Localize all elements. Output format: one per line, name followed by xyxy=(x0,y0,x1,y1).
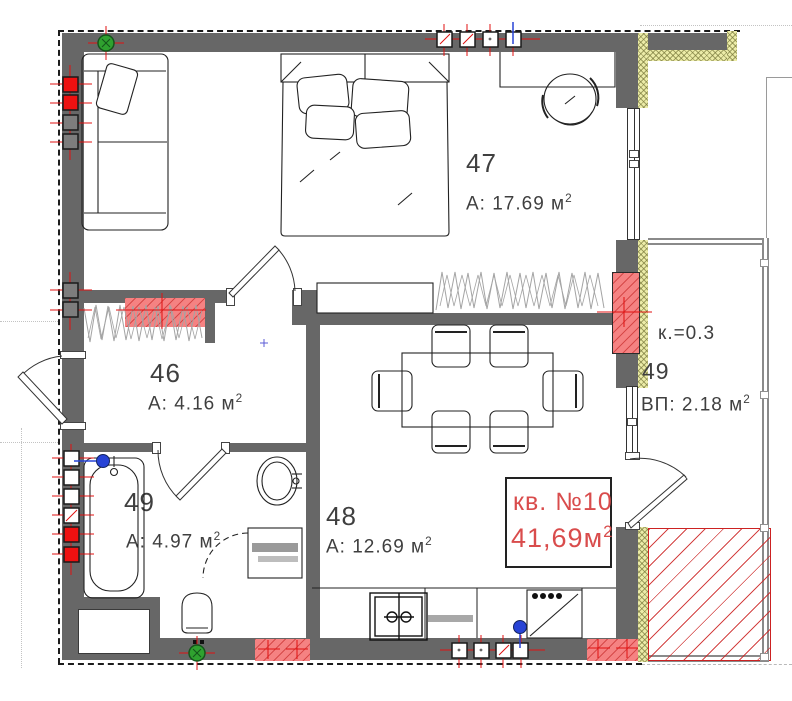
neighbour-line-h xyxy=(766,77,792,78)
washbasin xyxy=(257,457,302,505)
duct-niche xyxy=(78,609,150,654)
ref-line xyxy=(0,321,60,322)
bathtub xyxy=(84,456,144,598)
bed xyxy=(281,54,449,236)
kitchen-cabinet xyxy=(370,593,427,640)
bedroom-door xyxy=(229,246,295,297)
outer-dashed-left xyxy=(58,30,60,664)
vent-shaft xyxy=(612,272,640,354)
door-post xyxy=(60,422,86,430)
room-48-number: 48 xyxy=(326,501,357,532)
balcony-door xyxy=(628,458,687,528)
counter-bar xyxy=(428,615,473,622)
ref-cross xyxy=(260,339,268,347)
wall-stub-hall xyxy=(205,303,215,343)
wall-47-48 xyxy=(322,313,616,325)
outer-dashed-bottom xyxy=(58,663,642,665)
window-latch xyxy=(629,150,639,158)
wardrobe-zigzag-bedroom xyxy=(436,272,604,310)
wall-49-top-right xyxy=(227,443,306,452)
balcony-cold-zone xyxy=(648,528,771,661)
room-47-number: 47 xyxy=(466,148,497,179)
window-latch xyxy=(629,160,639,168)
insulation-right-1 xyxy=(638,33,648,108)
toilet xyxy=(182,593,212,644)
room-47-area: А: 17.69 м2 xyxy=(466,192,572,215)
radiator-bottom-right xyxy=(587,639,638,661)
apartment-number: кв. №10 xyxy=(513,488,613,517)
door-post xyxy=(221,442,230,454)
rail-joint xyxy=(760,259,769,267)
kitchen-counter xyxy=(312,588,616,638)
window-latch xyxy=(627,418,637,426)
balcony-area: ВП: 2.18 м2 xyxy=(641,393,750,416)
balcony-coef: к.=0.3 xyxy=(658,323,715,345)
neighbour-line-v xyxy=(766,77,767,238)
rail-joint xyxy=(760,391,769,399)
armchair xyxy=(542,74,598,125)
block-crosshairs xyxy=(116,293,652,659)
ref-line xyxy=(0,442,60,443)
radiator-hall xyxy=(125,298,205,327)
insulation-top xyxy=(638,50,727,61)
room-46-number: 46 xyxy=(150,358,181,389)
door-post xyxy=(625,522,640,530)
room-49-number: 49 xyxy=(124,487,155,518)
dining-table xyxy=(402,353,553,427)
room-46-area: А: 4.16 м2 xyxy=(148,392,242,415)
apartment-label-box: кв. №10 41,69м2 xyxy=(505,477,612,568)
sofa xyxy=(82,54,168,230)
floor-plan: 47 А: 17.69 м2 46 А: 4.16 м2 49 А: 4.97 … xyxy=(0,0,792,701)
dining-chairs xyxy=(372,325,583,453)
bathroom-door xyxy=(158,449,226,500)
stove xyxy=(527,590,582,638)
insulation-top-cap xyxy=(727,31,737,61)
door-post xyxy=(226,288,235,306)
wall-46-48 xyxy=(306,313,320,638)
ref-line xyxy=(21,428,22,668)
outer-dashed-bottom-right xyxy=(642,664,792,665)
apartment-total-area: 41,69м2 xyxy=(511,522,612,554)
rail-joint xyxy=(760,653,769,661)
door-post xyxy=(625,452,640,460)
outer-dashed-top xyxy=(58,30,740,32)
door-post xyxy=(152,442,161,454)
wall-49-top-left xyxy=(84,443,155,452)
radiator-bottom-left xyxy=(255,639,310,661)
wall-right-upper xyxy=(616,33,638,108)
door-post xyxy=(60,351,86,359)
wall-left xyxy=(62,33,84,660)
dresser xyxy=(317,283,433,313)
balcony-number: 49 xyxy=(642,358,670,385)
door-post xyxy=(293,288,302,306)
rail-joint xyxy=(760,524,769,532)
room-48-area: А: 12.69 м2 xyxy=(326,535,432,558)
room-49-area: А: 4.97 м2 xyxy=(126,530,220,553)
balcony-rail-top xyxy=(648,238,764,245)
insulation-right-3 xyxy=(638,527,648,662)
window-bedroom xyxy=(627,108,640,240)
ref-line xyxy=(640,25,792,26)
console-desk xyxy=(500,52,615,87)
